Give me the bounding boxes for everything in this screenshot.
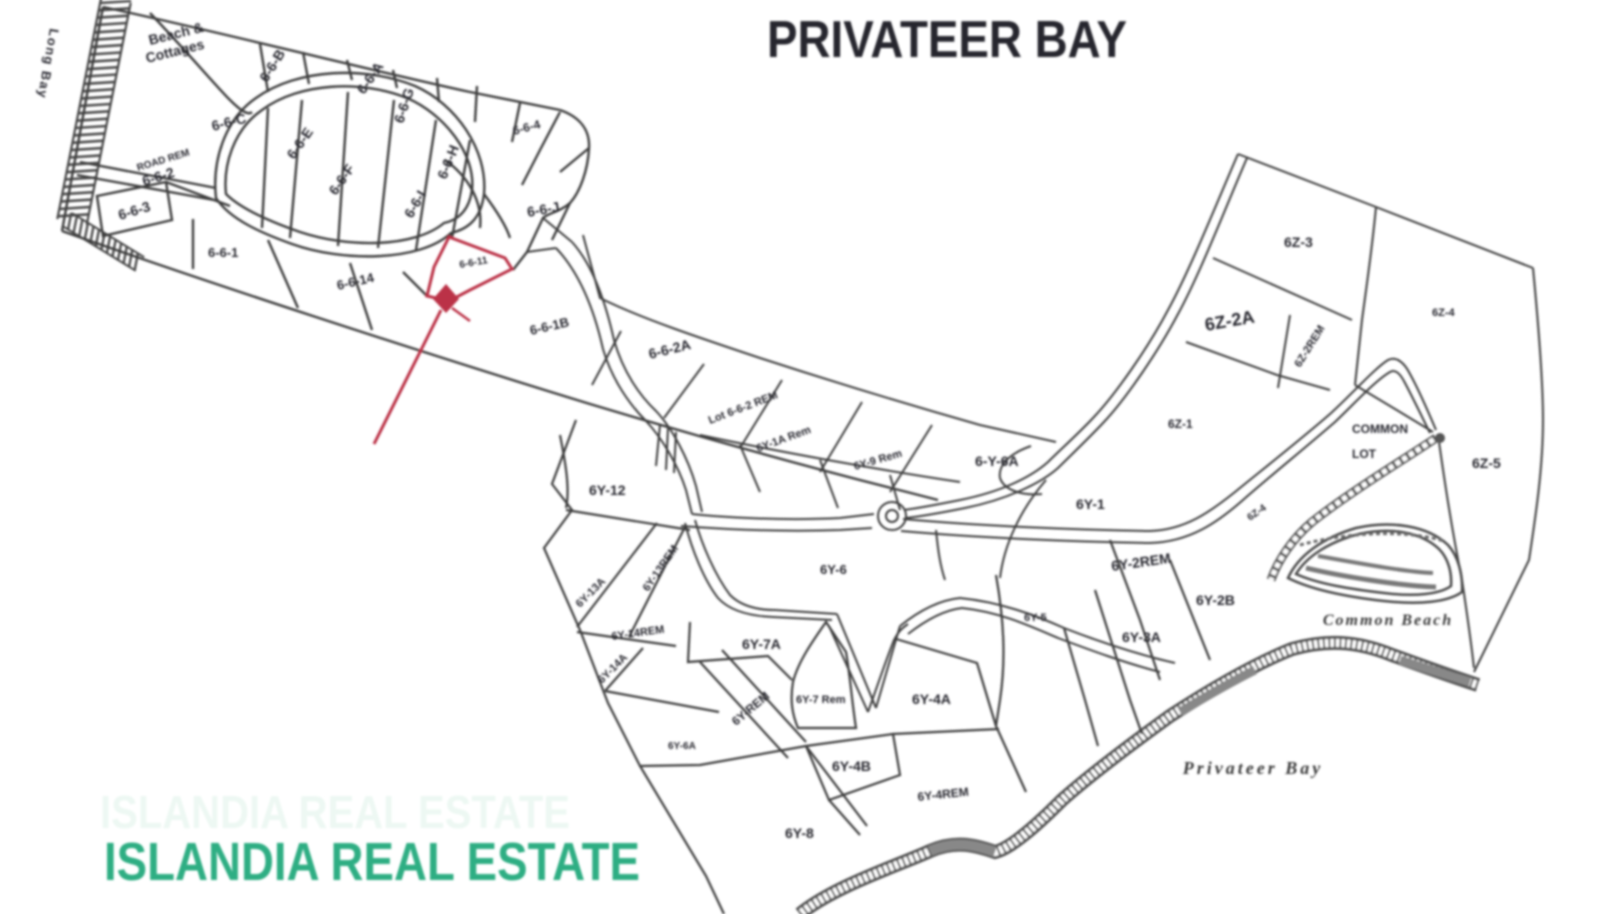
svg-text:6-6-F: 6-6-F bbox=[325, 161, 358, 198]
svg-text:6-6-1: 6-6-1 bbox=[208, 245, 238, 260]
svg-text:Lot 6-6-2 REM: Lot 6-6-2 REM bbox=[707, 389, 780, 426]
svg-text:6Y-REM: 6Y-REM bbox=[729, 689, 772, 728]
svg-text:6Y-12: 6Y-12 bbox=[589, 482, 626, 498]
svg-text:6Y-13REM: 6Y-13REM bbox=[641, 543, 681, 593]
svg-text:6Z-2REM: 6Z-2REM bbox=[1292, 323, 1327, 369]
svg-text:6Y-8: 6Y-8 bbox=[785, 825, 814, 841]
svg-text:6Y-4REM: 6Y-4REM bbox=[917, 785, 970, 804]
svg-text:6-6-11: 6-6-11 bbox=[459, 255, 489, 271]
svg-text:6Y-1: 6Y-1 bbox=[1076, 496, 1105, 512]
svg-text:6-Y-6A: 6-Y-6A bbox=[975, 453, 1019, 469]
svg-text:6-6-J: 6-6-J bbox=[526, 199, 561, 220]
svg-text:6-6-G: 6-6-G bbox=[391, 86, 417, 125]
svg-text:COMMON: COMMON bbox=[1352, 422, 1408, 436]
svg-text:6Z-5: 6Z-5 bbox=[1472, 455, 1501, 471]
svg-text:6Y-7A: 6Y-7A bbox=[742, 636, 781, 652]
svg-text:6Z-3: 6Z-3 bbox=[1284, 234, 1313, 250]
svg-text:Common Beach: Common Beach bbox=[1323, 612, 1453, 629]
svg-text:ISLANDIA REAL ESTATE: ISLANDIA REAL ESTATE bbox=[100, 786, 570, 838]
svg-text:6Y-4A: 6Y-4A bbox=[912, 691, 951, 707]
svg-text:ISLANDIA REAL ESTATE: ISLANDIA REAL ESTATE bbox=[104, 832, 640, 892]
svg-text:6Z-2A: 6Z-2A bbox=[1203, 307, 1256, 335]
svg-text:6-6-1B: 6-6-1B bbox=[528, 314, 570, 338]
svg-text:LOT: LOT bbox=[1352, 447, 1377, 461]
svg-text:6Y-4B: 6Y-4B bbox=[832, 758, 871, 774]
svg-text:6Z-1: 6Z-1 bbox=[1168, 417, 1193, 431]
svg-text:6-6-2A: 6-6-2A bbox=[647, 336, 692, 362]
svg-text:6Y-1A Rem: 6Y-1A Rem bbox=[755, 424, 813, 455]
svg-text:6-6-E: 6-6-E bbox=[283, 125, 316, 162]
svg-text:6Z-4: 6Z-4 bbox=[1245, 502, 1269, 523]
svg-text:6Y-2REM: 6Y-2REM bbox=[1110, 550, 1172, 574]
svg-text:6Y-6: 6Y-6 bbox=[820, 562, 847, 577]
svg-text:6Y-3A: 6Y-3A bbox=[1122, 629, 1161, 645]
svg-text:Long Bay: Long Bay bbox=[35, 27, 62, 100]
svg-text:6-6-3: 6-6-3 bbox=[116, 198, 152, 223]
svg-text:Privateer Bay: Privateer Bay bbox=[1182, 758, 1323, 778]
svg-text:6-6-H: 6-6-H bbox=[434, 143, 462, 181]
svg-text:6Y-6A: 6Y-6A bbox=[668, 741, 696, 752]
svg-text:6Y-2B: 6Y-2B bbox=[1196, 592, 1235, 608]
svg-text:PRIVATEER BAY: PRIVATEER BAY bbox=[767, 11, 1127, 69]
svg-text:6Y-7 Rem: 6Y-7 Rem bbox=[796, 694, 846, 706]
svg-text:6-6-14: 6-6-14 bbox=[335, 270, 376, 293]
svg-text:6Z-4: 6Z-4 bbox=[1432, 307, 1456, 319]
svg-text:6Y-5: 6Y-5 bbox=[1024, 612, 1047, 624]
